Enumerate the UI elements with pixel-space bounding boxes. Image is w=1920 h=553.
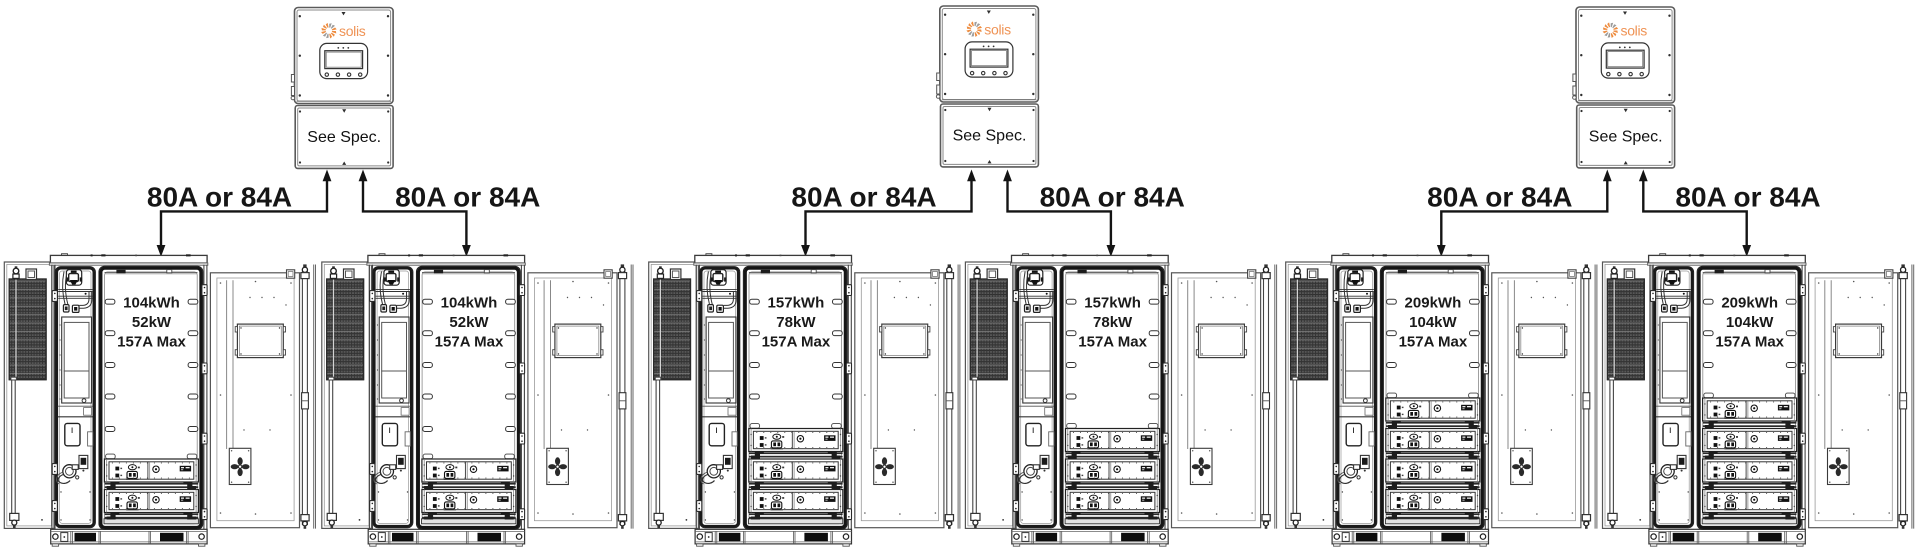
- svg-text:80A or 84A: 80A or 84A: [1040, 182, 1185, 213]
- svg-text:80A or 84A: 80A or 84A: [1427, 182, 1572, 213]
- svg-text:80A or 84A: 80A or 84A: [791, 182, 936, 213]
- svg-text:80A or 84A: 80A or 84A: [1675, 182, 1820, 213]
- svg-text:80A or 84A: 80A or 84A: [147, 182, 292, 213]
- svg-text:80A or 84A: 80A or 84A: [395, 182, 540, 213]
